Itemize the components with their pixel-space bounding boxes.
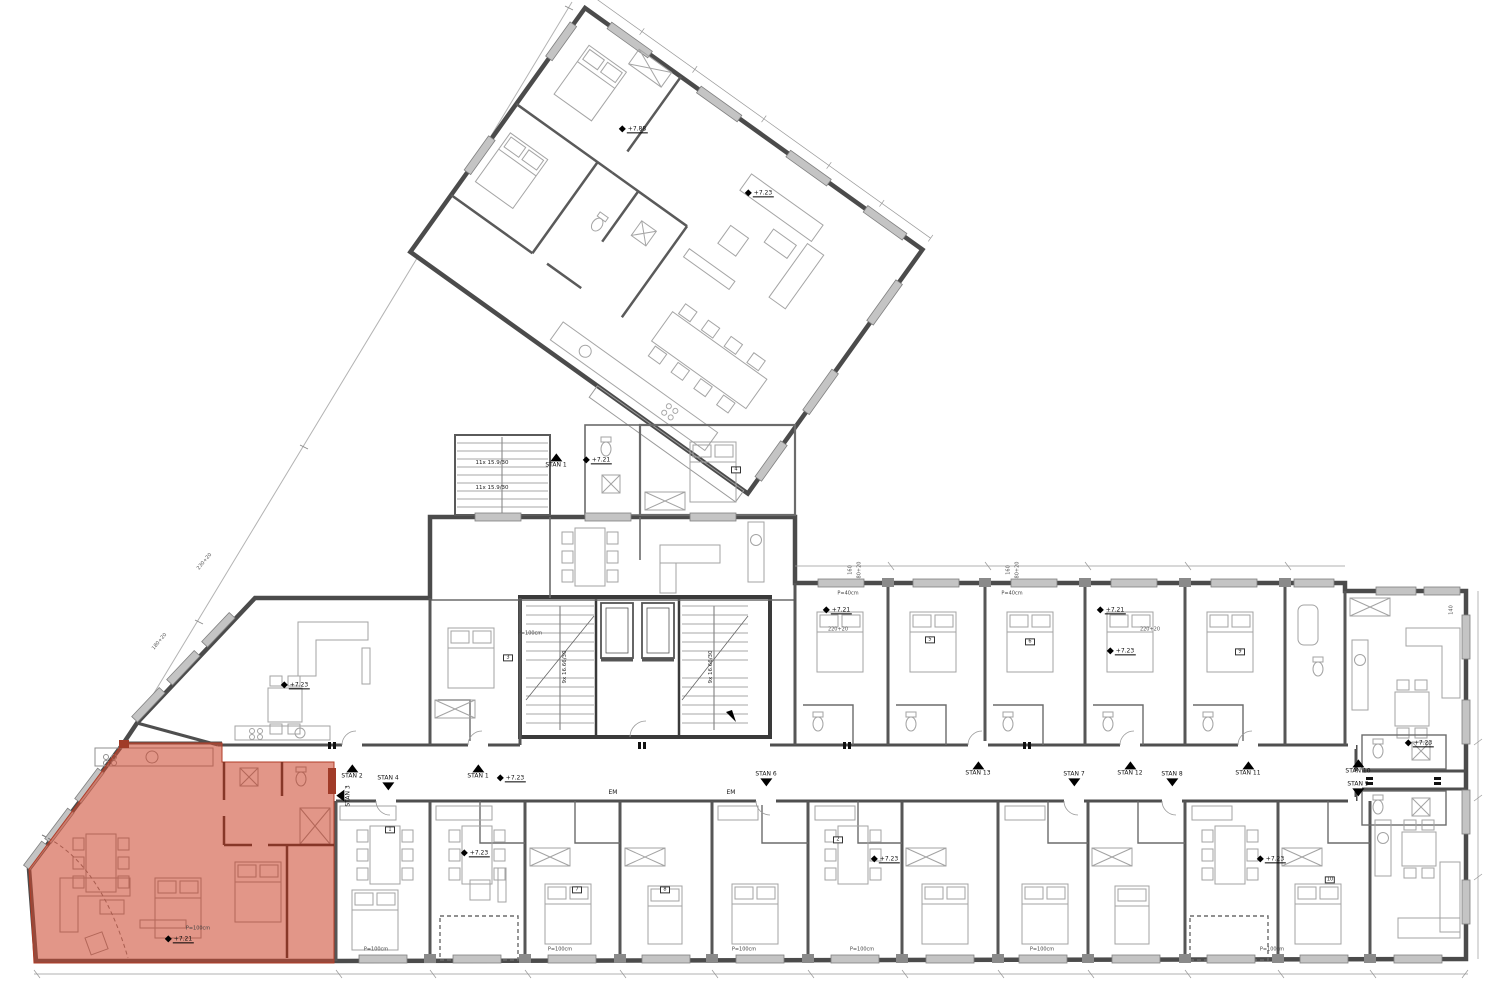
upper-stairwell bbox=[455, 435, 550, 515]
highlighted-apartment[interactable] bbox=[29, 740, 336, 963]
stair-elevator-core bbox=[520, 597, 770, 737]
angled-wing bbox=[399, 0, 936, 507]
floor-plan: STAN 2 STAN 3 STAN 4 STAN 1 STAN 1 STAN … bbox=[0, 0, 1500, 990]
floor-plan-canvas bbox=[0, 0, 1500, 990]
